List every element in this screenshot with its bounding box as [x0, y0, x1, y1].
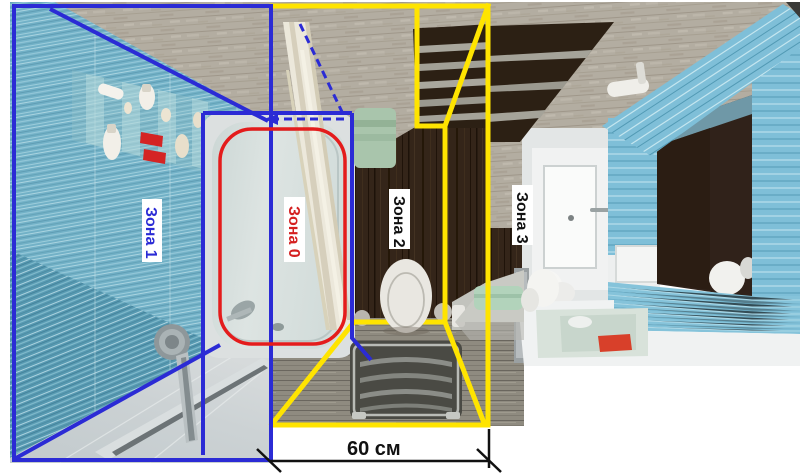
svg-text:Зона 0: Зона 0	[285, 206, 302, 258]
svg-text:Зона 2: Зона 2	[390, 196, 407, 248]
svg-text:Зона 3: Зона 3	[513, 192, 530, 244]
svg-text:60 см: 60 см	[347, 438, 401, 460]
svg-text:Зона 1: Зона 1	[142, 207, 159, 259]
